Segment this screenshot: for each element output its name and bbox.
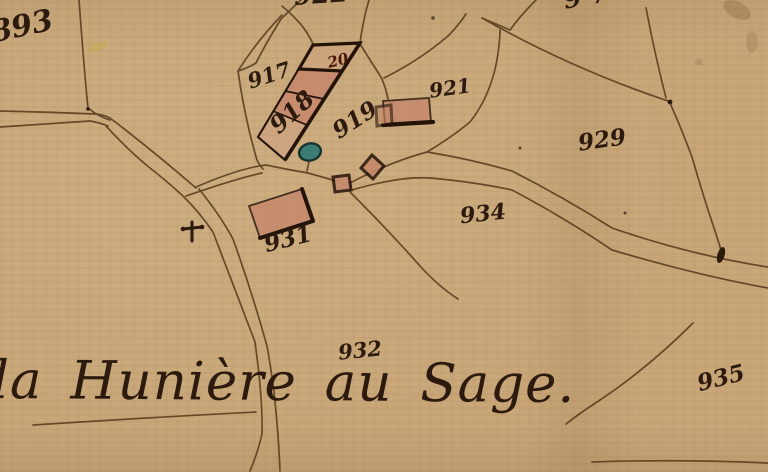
road-east-lower-edge [352, 178, 768, 288]
boundary-parcel-893 [79, 0, 88, 108]
junction-ink-dot [668, 100, 673, 105]
boundary-934-932 [350, 192, 458, 299]
boundary-parcel-929-east [670, 103, 721, 250]
parcel-label-929: 929 [577, 125, 628, 154]
boundary-parcel-929-northeast [646, 8, 666, 98]
road-west-lower-edge [0, 121, 108, 127]
boundary-922-to-buildings [282, 6, 313, 44]
small-square-building [333, 175, 351, 192]
boundary-921-north [384, 14, 466, 78]
junction-ink-dot-west [86, 107, 90, 111]
boundary-bottom-right [592, 461, 768, 463]
faint-line-under-title [33, 412, 256, 425]
ink-marks [86, 16, 727, 264]
boundary-parcel-917-north [238, 0, 301, 71]
cross-horizontal [183, 227, 202, 229]
ink-speck-3 [431, 16, 435, 20]
boundary-top-fork [482, 0, 536, 30]
ink-speck-2 [624, 212, 627, 215]
pond-outlet-line [307, 161, 309, 171]
ink-speck-1 [519, 147, 522, 150]
stain-yellow [85, 39, 108, 54]
boundary-919-921 [360, 44, 388, 99]
place-name-title: la Hunière au Sage. [0, 350, 576, 415]
road-south-west-edge [184, 197, 262, 471]
cross-arm-dot-right [200, 225, 205, 230]
stain-top-right-1 [720, 0, 754, 24]
cadastral-map: 8939229 791720918919921929934931932935 l… [0, 0, 768, 472]
stain-top-right-2 [746, 31, 758, 53]
boundary-917-to-road [251, 138, 263, 169]
boundary-parcel-935-west [566, 323, 693, 424]
road-to-junction-lower-edge [106, 126, 184, 197]
stain-small [695, 59, 703, 65]
road-east-upper-edge [350, 152, 768, 267]
pond [297, 141, 322, 163]
parcel-label-922: 922 [293, 0, 349, 10]
parcel-label-934: 934 [459, 201, 507, 228]
ink-blot-on-road [715, 246, 726, 264]
cross-arm-dot-left [181, 227, 186, 232]
boundary-922-east [360, 0, 369, 43]
road-to-village-upper-edge [196, 165, 336, 187]
wayside-cross-icon [181, 222, 205, 241]
road-to-junction-upper-edge [110, 118, 196, 188]
parcel-label-921: 921 [428, 75, 472, 101]
